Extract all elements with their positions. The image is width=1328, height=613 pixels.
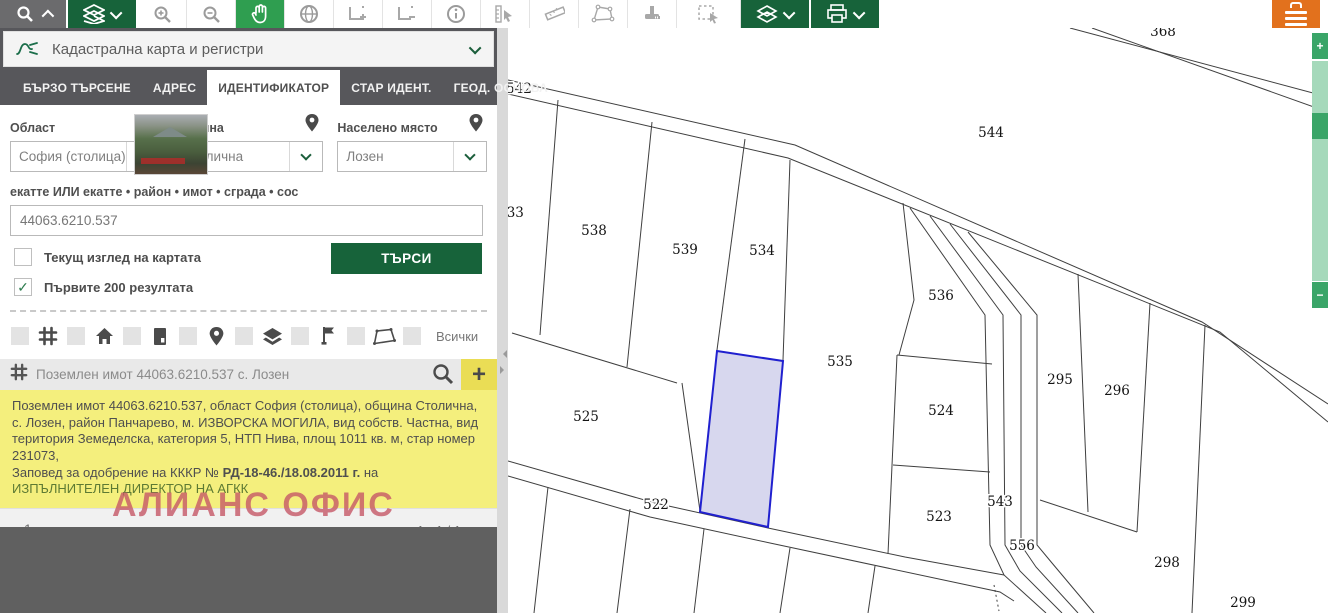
parcel-number-label: 368 (1150, 28, 1176, 40)
zoom-out-button[interactable] (187, 0, 236, 28)
measure-position-button[interactable] (481, 0, 530, 28)
current-view-label: Текущ изглед на картата (44, 250, 201, 265)
collapse-left-icon (499, 350, 507, 358)
parcel-boundary (893, 465, 990, 472)
layers-icon (756, 4, 778, 24)
chevron-down-icon (301, 149, 312, 160)
parcel-number-label: 523 (926, 509, 952, 525)
stamp-button[interactable] (628, 0, 677, 28)
slider-track[interactable] (1312, 61, 1328, 281)
panel-empty-area (0, 527, 497, 613)
search-panel-toggle-button[interactable] (0, 0, 68, 28)
selected-parcel-537[interactable] (700, 351, 783, 527)
zoom-in-button[interactable] (138, 0, 187, 28)
hand-icon (251, 4, 269, 24)
full-extent-button[interactable] (285, 0, 334, 28)
first-200-label: Първите 200 резултата (44, 280, 193, 295)
parcel-boundary (682, 383, 700, 511)
parcel-boundary (627, 122, 652, 367)
chevron-down-icon (469, 41, 482, 54)
parcel-boundary (897, 355, 992, 364)
parcel-boundary (868, 566, 875, 613)
zoom-in-icon (153, 5, 172, 24)
tab-identifier[interactable]: ИДЕНТИФИКАТОР (207, 70, 340, 105)
listing-photo (135, 115, 207, 174)
parcel-number-label: 522 (643, 497, 669, 513)
parcel-boundary (512, 333, 677, 383)
parcel-boundary (1040, 500, 1137, 532)
grid-icon (10, 363, 28, 386)
filter-checkbox[interactable] (67, 327, 85, 345)
chevron-down-icon (782, 6, 795, 19)
stamp-icon (642, 4, 662, 24)
parcel-boundary (694, 529, 704, 613)
pan-tool-button[interactable] (236, 0, 285, 28)
tab-bar: БЪРЗО ТЪРСЕНЕ АДРЕС ИДЕНТИФИКАТОР СТАР И… (0, 70, 497, 105)
filter-checkbox[interactable] (347, 327, 365, 345)
print-button[interactable] (811, 0, 881, 28)
flag-icon (316, 326, 340, 346)
plus-icon: + (472, 361, 486, 389)
parcel-boundary (508, 94, 1328, 422)
next-extent-button[interactable] (383, 0, 432, 28)
search-panel: Кадастрална карта и регистри БЪРЗО ТЪРСЕ… (0, 28, 497, 613)
parcel-boundary (508, 80, 1328, 404)
filter-checkbox[interactable] (123, 327, 141, 345)
zoom-out-slider-button[interactable]: − (1312, 282, 1328, 308)
tab-quick-search[interactable]: БЪРЗО ТЪРСЕНЕ (12, 70, 142, 105)
basemap-layers-button[interactable] (68, 0, 138, 28)
measure-area-button[interactable] (579, 0, 628, 28)
cadastral-map[interactable]: 3685425445335385395345365352952965255245… (508, 28, 1328, 613)
all-filters-label: Всички (436, 329, 478, 344)
tab-address[interactable]: АДРЕС (142, 70, 207, 105)
parcel-boundary-dashed (994, 585, 999, 611)
parcel-number-label: 533 (508, 205, 524, 221)
extent-minus-icon (397, 5, 417, 23)
parcel-boundary (888, 355, 897, 554)
layers-icon (83, 4, 105, 24)
layers-icon (260, 327, 284, 346)
current-view-checkbox[interactable] (14, 248, 32, 266)
identifier-form: Област София (столица) Община Столична (0, 105, 497, 296)
pin-icon[interactable] (305, 114, 319, 135)
map-layers-button[interactable] (741, 0, 811, 28)
tab-old-ident[interactable]: СТАР ИДЕНТ. (340, 70, 442, 105)
kais-logo-icon (16, 41, 38, 57)
filter-checkbox[interactable] (11, 327, 29, 345)
parcel-number-label: 524 (928, 403, 954, 419)
result-row[interactable]: Поземлен имот 44063.6210.537 с. Лозен + (0, 359, 497, 390)
grid-icon (36, 326, 60, 346)
printer-icon (826, 4, 848, 24)
slider-thumb[interactable] (1312, 113, 1328, 139)
parcel-boundary (1078, 274, 1088, 512)
parcel-boundary (1192, 325, 1205, 613)
settlement-select[interactable]: Лозен (337, 141, 487, 172)
pin-icon (204, 327, 228, 346)
result-title: Поземлен имот 44063.6210.537 с. Лозен (36, 367, 289, 382)
pin-icon[interactable] (469, 114, 483, 135)
parcel-boundary (534, 487, 548, 613)
pointer-measure-icon (495, 4, 515, 24)
building-icon (148, 327, 172, 346)
parcel-number-label: 535 (827, 354, 853, 370)
parcel-map-canvas[interactable]: 3685425445335385395345365352952965255245… (508, 28, 1328, 613)
zoom-in-slider-button[interactable]: + (1312, 33, 1328, 59)
chevron-down-icon (464, 149, 475, 160)
select-rect-icon (697, 4, 721, 24)
parcel-boundary (899, 203, 914, 355)
search-icon (16, 5, 34, 23)
parcel-number-label: 536 (928, 288, 954, 304)
settlement-label: Населено място (337, 121, 437, 135)
service-title: Кадастрална карта и регистри (52, 41, 464, 58)
chevron-down-icon (109, 6, 122, 19)
panel-collapse-handle[interactable] (497, 28, 508, 613)
parcel-number-label: 543 (987, 494, 1013, 510)
map-zoom-slider: + − (1312, 33, 1328, 308)
parcel-number-label: 539 (672, 242, 698, 258)
filter-checkbox[interactable] (235, 327, 253, 345)
parcel-boundary (783, 160, 790, 360)
parcel-boundary (540, 100, 558, 335)
kais-cadastre-app: Кадастрална карта и регистри БЪРЗО ТЪРСЕ… (0, 0, 1328, 613)
filter-checkbox[interactable] (291, 327, 309, 345)
select-region-button[interactable] (677, 0, 741, 28)
ekatte-label: екатте ИЛИ екатте • район • имот • сград… (10, 185, 487, 199)
parcel-boundary (717, 139, 745, 350)
parcel-number-label: 298 (1154, 555, 1180, 571)
parcel-number-label: 534 (749, 243, 775, 259)
globe-icon (299, 4, 319, 24)
chevron-up-icon (41, 9, 54, 22)
service-selector[interactable]: Кадастрална карта и регистри (3, 31, 494, 67)
result-type-filters: Всички (4, 322, 497, 350)
parcel-boundary (780, 548, 790, 613)
info-icon (446, 4, 466, 24)
watermark: АЛИАНС ОФИС (112, 486, 395, 525)
panel-header: Кадастрална карта и регистри (0, 28, 497, 70)
parcel-boundary (1092, 28, 1328, 112)
filter-checkbox[interactable] (179, 327, 197, 345)
tab-geodetic-basis[interactable]: ГЕОД. ОСНОВА (443, 70, 559, 105)
identifier-input[interactable] (10, 205, 483, 236)
parcel-boundary (617, 509, 630, 613)
divider (10, 310, 487, 312)
filter-checkbox[interactable] (403, 327, 421, 345)
parcel-number-label: 299 (1230, 595, 1256, 611)
map-toolbar (0, 0, 1328, 28)
previous-extent-button[interactable] (334, 0, 383, 28)
parcel-boundary (1137, 303, 1150, 532)
identify-button[interactable] (432, 0, 481, 28)
parcel-boundary (950, 224, 1078, 613)
parcel-number-label: 538 (581, 223, 607, 239)
chevron-down-icon (852, 6, 865, 19)
parcel-boundary (1070, 28, 1328, 97)
measure-distance-button[interactable] (530, 0, 579, 28)
main-menu-button[interactable] (1272, 0, 1320, 28)
expand-right-icon (500, 366, 504, 374)
menu-icon (1290, 2, 1302, 8)
polygon-measure-icon (591, 4, 615, 24)
parcel-number-label: 525 (573, 409, 599, 425)
search-button[interactable]: ТЪРСИ (331, 243, 482, 274)
parcel-number-label: 544 (978, 125, 1004, 141)
zoom-to-result-button[interactable] (431, 362, 455, 391)
parcel-number-label: 556 (1009, 538, 1035, 554)
first-200-checkbox[interactable]: ✓ (14, 278, 32, 296)
parcel-number-label: 295 (1047, 372, 1073, 388)
polygon-icon (372, 327, 396, 346)
zoom-out-icon (202, 5, 221, 24)
home-icon (92, 327, 116, 345)
add-result-button[interactable]: + (461, 359, 497, 390)
extent-plus-icon (348, 5, 368, 23)
parcel-number-label: 296 (1104, 383, 1130, 399)
ruler-icon (543, 4, 565, 24)
